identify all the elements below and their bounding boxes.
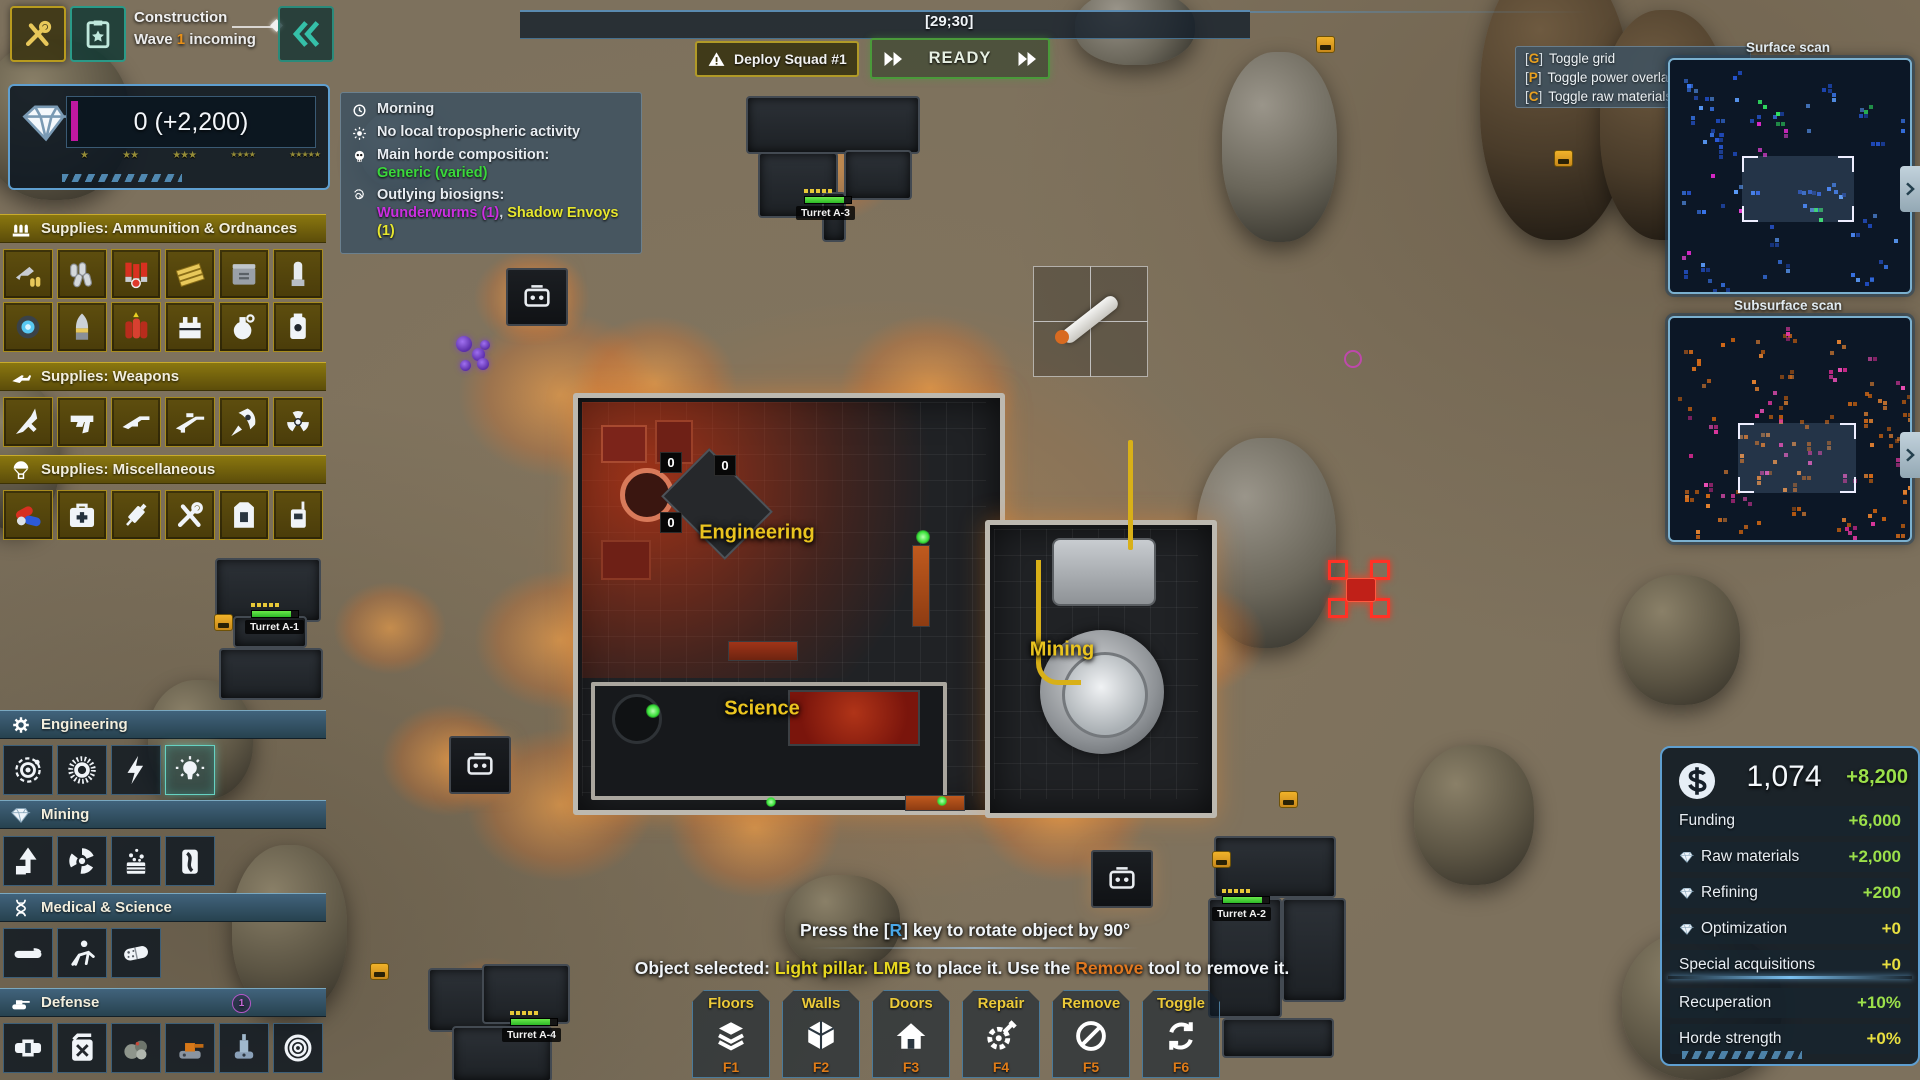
deploy-squad-label: Deploy Squad #1 [734, 51, 847, 67]
rare-deposit-dot [1871, 522, 1875, 526]
sun-icon [351, 125, 368, 142]
build-item-barrier[interactable] [3, 1023, 53, 1073]
ammo-pip [1228, 889, 1232, 893]
build-item-light-pillar[interactable] [165, 745, 215, 795]
threat-star-group: ★★★★ [230, 150, 255, 161]
rare-deposit-dot [1768, 401, 1772, 405]
surface-anomaly-dot [1757, 122, 1761, 126]
medkit-icon [65, 498, 99, 532]
economy-divider [1668, 976, 1912, 979]
turret-name-label: Turret A-1 [245, 620, 304, 634]
ore-deposit-dot [1723, 518, 1727, 522]
rare-deposit-dot [1709, 488, 1713, 492]
rare-deposit-dot [1709, 483, 1713, 487]
surface-signal-dot [1684, 275, 1688, 279]
boulder [1196, 438, 1336, 648]
tool-toggle-button[interactable]: ToggleF6 [1142, 990, 1220, 1078]
ore-deposit-dot [1908, 486, 1912, 490]
ore-deposit-dot [1868, 514, 1872, 518]
surface-signal-dot [1750, 119, 1754, 123]
marker-slot [1216, 860, 1227, 865]
ore-deposit-dot [1903, 500, 1907, 504]
tool-floors-button[interactable]: FloorsF1 [692, 990, 770, 1078]
build-item-power[interactable] [111, 745, 161, 795]
turret-health-bar [1222, 896, 1270, 904]
section-header-defense[interactable]: Defense1 [0, 988, 326, 1017]
explosive-charge-icon [119, 310, 153, 344]
door-connector [905, 795, 965, 811]
surface-signal-dot [1770, 243, 1774, 247]
surface-friendly-dot [1864, 110, 1868, 114]
tool-hotkey: F2 [813, 1059, 829, 1075]
ore-deposit-dot [1744, 525, 1748, 529]
surface-anomaly-dot [1758, 148, 1762, 152]
ore-deposit-dot [1848, 402, 1852, 406]
economy-row-funding: Funding+6,000 [1670, 806, 1910, 836]
ore-deposit-dot [1706, 504, 1710, 508]
section-header-engineering[interactable]: Engineering [0, 710, 326, 739]
condition-row: Main horde composition:Generic (varied) [351, 146, 631, 182]
ore-deposit-dot [1712, 417, 1716, 421]
text-part: LMB [873, 958, 911, 978]
build-item-bore[interactable] [57, 836, 107, 886]
surface-signal-dot [1828, 84, 1832, 88]
surface-signal-dot [1832, 98, 1836, 102]
condition-text: Main horde composition:Generic (varied) [377, 146, 627, 182]
armor-vest-icon [227, 498, 261, 532]
diamond-icon [20, 96, 72, 148]
barrier-icon [11, 1031, 45, 1065]
surface-signal-dot [1719, 155, 1723, 159]
shotgun-icon [119, 405, 153, 439]
supply-crate[interactable] [1091, 850, 1153, 908]
tool-repair-button[interactable]: RepairF4 [962, 990, 1040, 1078]
rare-deposit-dot [1786, 327, 1790, 331]
ore-deposit-dot [1869, 474, 1873, 478]
marker-slot [1558, 159, 1569, 164]
build-item-sniper-rifle[interactable] [165, 397, 215, 447]
mode-label: Construction [134, 9, 227, 26]
ore-deposit-dot [1853, 402, 1857, 406]
economy-row-horde-strength: Horde strength+0% [1670, 1024, 1910, 1054]
supply-crate[interactable] [449, 736, 511, 794]
spiral-icon [351, 188, 368, 205]
pills-icon [11, 498, 45, 532]
economy-row-value: +6,000 [1849, 811, 1901, 831]
subsurface-panel-tab[interactable] [1900, 432, 1920, 478]
yellow-pipe [1128, 440, 1133, 550]
game-screen: 000EngineeringScienceMining Turret A-1Tu… [0, 0, 1920, 1080]
ore-deposit-dot [1882, 517, 1886, 521]
turret-health-bar [804, 196, 852, 204]
rare-deposit-dot [1743, 497, 1747, 501]
ore-deposit-dot [1864, 424, 1868, 428]
surface-signal-dot [1703, 140, 1707, 144]
surface-signal-dot [1733, 152, 1737, 156]
ghost-grid-cell [1090, 321, 1148, 377]
rescue-icon [65, 936, 99, 970]
economy-row-raw-materials: Raw materials+2,000 [1670, 842, 1910, 872]
build-item-radiation[interactable] [273, 397, 323, 447]
surface-signal-dot [1719, 292, 1723, 294]
production-counter: 0 [714, 455, 736, 476]
drill-tower-icon [11, 844, 45, 878]
light-pillar-icon [173, 753, 207, 787]
rare-deposit-dot [1901, 386, 1905, 390]
build-item-explosive-charge[interactable] [111, 302, 161, 352]
ghost-grid-cell [1033, 266, 1091, 322]
build-item-grenade[interactable] [219, 302, 269, 352]
build-item-medkit[interactable] [57, 490, 107, 540]
build-item-capsule[interactable] [111, 928, 161, 978]
surface-signal-dot [1699, 106, 1703, 110]
objective-marker [1212, 851, 1231, 868]
surface-signal-dot [1689, 84, 1693, 88]
surface-signal-dot [1856, 233, 1860, 237]
build-item-fuel-can[interactable] [57, 1023, 107, 1073]
text-part: Object selected: [635, 958, 775, 978]
surface-signal-dot [1719, 133, 1723, 137]
economy-row-value: +0 [1882, 919, 1901, 939]
turret-health-bar [251, 610, 299, 618]
fast-forward-icon [881, 47, 905, 71]
surface-signal-dot [1807, 129, 1811, 133]
build-item-mine[interactable] [273, 302, 323, 352]
turret-orange-icon [173, 1031, 207, 1065]
rare-deposit-dot [1833, 378, 1837, 382]
minimap-viewport [1742, 156, 1854, 222]
surface-signal-dot [1786, 269, 1790, 273]
build-item-stretcher[interactable] [3, 928, 53, 978]
build-item-mortar-shell[interactable] [273, 249, 323, 299]
ore-deposit-dot [1864, 419, 1868, 423]
resource-value-box: 0 (+2,200) [66, 96, 316, 148]
text-part: Press the [ [800, 920, 889, 940]
viewport-corner [1838, 206, 1854, 222]
ore-deposit-dot [1901, 524, 1905, 528]
energy-cell-icon [11, 310, 45, 344]
tool-remove-button[interactable]: RemoveF5 [1052, 990, 1130, 1078]
surface-signal-dot [1719, 150, 1723, 154]
ore-deposit-dot [1793, 339, 1797, 343]
build-item-pistol-ammo[interactable] [3, 249, 53, 299]
text-part: to place it. Use the [911, 958, 1075, 978]
surface-friendly-dot [1776, 122, 1780, 126]
missions-button[interactable] [70, 6, 126, 62]
subsurface-scan-minimap[interactable] [1668, 316, 1912, 542]
build-item-ammo-belt[interactable] [165, 249, 215, 299]
build-item-ammo-can[interactable] [219, 249, 269, 299]
economy-row-value: +200 [1863, 883, 1901, 903]
shells-icon [10, 218, 32, 240]
build-item-armor-vest[interactable] [219, 490, 269, 540]
rare-deposit-dot [1704, 483, 1708, 487]
build-item-drill-tower[interactable] [3, 836, 53, 886]
marker-slot [218, 623, 229, 628]
tool-walls-button[interactable]: WallsF2 [782, 990, 860, 1078]
section-badge: 1 [232, 994, 251, 1013]
viewport-corner [1738, 423, 1754, 439]
ore-deposit-dot [1685, 498, 1689, 502]
ore-deposit-dot [1797, 507, 1801, 511]
surface-signal-dot [1763, 275, 1767, 279]
build-item-energy-cell[interactable] [3, 302, 53, 352]
build-item-orbit-generator[interactable] [3, 745, 53, 795]
text-part: ] key to rotate object by 90° [902, 920, 1130, 940]
build-item-radar[interactable] [273, 1023, 323, 1073]
ore-deposit-dot [1864, 474, 1868, 478]
surface-signal-dot [1757, 115, 1761, 119]
detonator-icon [173, 310, 207, 344]
knife-icon [11, 405, 45, 439]
grenade-icon [227, 310, 261, 344]
radar-icon [281, 1031, 315, 1065]
supply-crate[interactable] [506, 268, 568, 326]
tool-hotkey: F1 [723, 1059, 739, 1075]
surface-anomaly-dot [1687, 251, 1691, 255]
condition-text: No local tropospheric activity [377, 123, 580, 141]
target-corner [1328, 560, 1348, 580]
build-item-shotgun-shells[interactable] [111, 249, 161, 299]
section-header-weapons[interactable]: Supplies: Weapons [0, 362, 326, 391]
biosign-blob [477, 358, 489, 370]
ammo-pip [522, 1011, 526, 1015]
clock-icon [351, 102, 368, 119]
engineering-machine [601, 425, 647, 463]
economy-row-value: +2,000 [1849, 847, 1901, 867]
power-icon [119, 753, 153, 787]
build-item-solar-generator[interactable] [57, 745, 107, 795]
health-fill [252, 611, 291, 617]
chem-extractor-icon [119, 844, 153, 878]
ore-deposit-dot [1908, 418, 1912, 422]
text-part: Remove [1075, 958, 1143, 978]
surface-signal-dot [1806, 104, 1810, 108]
economy-row-label: Recuperation [1679, 994, 1771, 1012]
fuel-can-icon [65, 1031, 99, 1065]
hint-key: [C] [1525, 87, 1542, 106]
economy-row-value: +0% [1867, 1029, 1902, 1049]
tool-hotkey: F4 [993, 1059, 1009, 1075]
build-item-pills[interactable] [3, 490, 53, 540]
turret-structure [1282, 898, 1346, 1002]
cube-icon [803, 1018, 839, 1054]
surface-anomaly-dot [1784, 129, 1788, 133]
world-coordinates: [29;30] [925, 13, 973, 30]
skull-icon [351, 148, 368, 165]
surface-signal-dot [1879, 260, 1883, 264]
section-title: Supplies: Ammunition & Ordnances [41, 220, 297, 237]
object-selected-message: Object selected: Light pillar. LMB to pl… [635, 958, 1290, 979]
surface-signal-dot [1832, 93, 1836, 97]
ammo-pip [510, 1011, 514, 1015]
deploy-squad-button[interactable]: Deploy Squad #1 [695, 41, 859, 77]
tool-hotkey: F6 [1173, 1059, 1189, 1075]
section-header-misc[interactable]: Supplies: Miscellaneous [0, 455, 326, 484]
build-item-rubble[interactable] [111, 1023, 161, 1073]
radio-icon [281, 498, 315, 532]
status-light-green [646, 704, 660, 718]
ore-deposit-dot [1759, 354, 1763, 358]
economy-row-label: Funding [1679, 812, 1735, 830]
surface-signal-dot [1770, 225, 1774, 229]
ore-deposit-dot [1883, 401, 1887, 405]
biosign-blob [456, 336, 472, 352]
surface-signal-dot [1775, 238, 1779, 242]
section-header-medical[interactable]: Medical & Science [0, 893, 326, 922]
viewport-corner [1738, 477, 1754, 493]
turret-name-label: Turret A-3 [796, 206, 855, 220]
ore-deposit-dot [1695, 490, 1699, 494]
ammo-pip [251, 603, 255, 607]
surface-signal-dot [1868, 224, 1872, 228]
ore-deposit-dot [1873, 509, 1877, 513]
ore-deposit-dot [1706, 494, 1710, 498]
ore-deposit-dot [1757, 521, 1761, 525]
section-header-ammo[interactable]: Supplies: Ammunition & Ordnances [0, 214, 326, 243]
minimap-viewport [1738, 423, 1856, 493]
build-item-shotgun[interactable] [111, 397, 161, 447]
tool-label: Walls [802, 995, 841, 1012]
ore-deposit-dot [1869, 479, 1873, 483]
objective-marker [1316, 36, 1335, 53]
ammo-pip [534, 1011, 538, 1015]
ore-deposit-dot [1870, 443, 1874, 447]
ore-deposit-dot [1889, 434, 1893, 438]
surface-signal-dot [1694, 96, 1698, 100]
build-item-chem-extractor[interactable] [111, 836, 161, 886]
ore-deposit-dot [1784, 396, 1788, 400]
dollar-icon [1674, 758, 1720, 804]
rare-deposit-dot [1714, 425, 1718, 429]
build-item-missile[interactable] [219, 397, 269, 447]
surface-signal-dot [1851, 233, 1855, 237]
ready-button[interactable]: READY [870, 38, 1050, 79]
ammo-pip [810, 189, 814, 193]
canister-icon [173, 844, 207, 878]
surface-signal-dot [1716, 119, 1720, 123]
solar-generator-icon [65, 753, 99, 787]
syringe-icon [119, 498, 153, 532]
ore-deposit-dot [1755, 387, 1759, 391]
collapse-panel-button[interactable] [278, 6, 334, 62]
build-item-rescue[interactable] [57, 928, 107, 978]
surface-signal-dot [1786, 264, 1790, 268]
ore-deposit-dot [1688, 407, 1692, 411]
crate-bot-icon [463, 748, 497, 782]
tool-label: Toggle [1157, 995, 1205, 1012]
text-part: incoming [185, 31, 256, 48]
marker-slot [374, 972, 385, 977]
resource-value: 0 (+2,200) [67, 97, 315, 147]
gear-icon [10, 714, 32, 736]
clipboard-star-icon [81, 17, 115, 51]
text-part: No local tropospheric activity [377, 124, 580, 140]
section-title: Supplies: Miscellaneous [41, 461, 215, 478]
objective-marker [370, 963, 389, 980]
conveyor-strip [728, 641, 798, 661]
build-item-pistol[interactable] [57, 397, 107, 447]
surface-signal-dot [1901, 129, 1905, 133]
ore-deposit-dot [1696, 530, 1700, 534]
tool-doors-button[interactable]: DoorsF3 [872, 990, 950, 1078]
surface-anomaly-dot [1711, 174, 1715, 178]
surface-signal-dot [1881, 142, 1885, 146]
build-item-syringe[interactable] [111, 490, 161, 540]
economy-row-label: Refining [1701, 884, 1758, 902]
surface-scan-minimap[interactable] [1668, 58, 1912, 294]
threat-star-group: ★★★★★ [289, 150, 320, 161]
tool-label: Repair [978, 995, 1025, 1012]
placement-ghost[interactable] [1033, 266, 1147, 376]
rare-deposit-dot [1786, 332, 1790, 336]
boulder [1222, 52, 1337, 242]
build-item-tools[interactable] [165, 490, 215, 540]
diamond-icon [10, 804, 32, 826]
surface-signal-dot [1860, 108, 1864, 112]
ammo-pip [528, 1011, 532, 1015]
turret-structure [746, 96, 920, 154]
turret-structure [219, 648, 323, 700]
refresh-icon [1163, 1018, 1199, 1054]
viewport-corner [1838, 156, 1854, 172]
text-part: Outlying biosigns: [377, 187, 504, 203]
ore-deposit-dot [1769, 415, 1773, 419]
surface-signal-dot [1684, 79, 1688, 83]
build-item-radio[interactable] [273, 490, 323, 540]
text-part: Wunderwurms (1) [377, 205, 499, 221]
ore-deposit-dot [1903, 413, 1907, 417]
light-glow [318, 569, 463, 688]
build-item-turret-orange[interactable] [165, 1023, 215, 1073]
build-item-turret-blue[interactable] [219, 1023, 269, 1073]
boulder [1620, 575, 1740, 705]
enemy-target-brackets [1328, 560, 1390, 618]
engineering-machine [601, 540, 651, 580]
enemy-unit[interactable] [1346, 578, 1376, 602]
surface-panel-tab[interactable] [1900, 166, 1920, 212]
surface-signal-dot [1775, 243, 1779, 247]
build-item-artillery-shell[interactable] [57, 302, 107, 352]
ore-deposit-dot [1792, 512, 1796, 516]
conditions-tooltip: MorningNo local tropospheric activityMai… [340, 92, 642, 254]
surface-signal-dot [1734, 190, 1738, 194]
build-menu-button[interactable] [10, 6, 66, 62]
turret-structure [1222, 1018, 1334, 1058]
build-item-detonator[interactable] [165, 302, 215, 352]
viewport-corner [1742, 156, 1758, 172]
surface-signal-dot [1721, 204, 1725, 208]
ore-deposit-dot [1830, 415, 1834, 419]
build-item-knife[interactable] [3, 397, 53, 447]
rifle-casings-icon [65, 257, 99, 291]
ore-deposit-dot [1887, 427, 1891, 431]
build-item-canister[interactable] [165, 836, 215, 886]
ammo-pip [257, 603, 261, 607]
threat-star-group: ★ [80, 150, 88, 161]
economy-secondary-rows: Recuperation+10%Horde strength+0% [1670, 988, 1910, 1060]
surface-signal-dot [1702, 210, 1706, 214]
surface-signal-dot [1719, 145, 1723, 149]
surface-signal-dot [1876, 142, 1880, 146]
surface-signal-dot [1708, 279, 1712, 283]
build-item-rifle-casings[interactable] [57, 249, 107, 299]
ammo-pip [516, 1011, 520, 1015]
section-header-mining[interactable]: Mining [0, 800, 326, 829]
warning-icon [707, 50, 726, 69]
ammo-pip [1246, 889, 1250, 893]
surface-signal-dot [1822, 88, 1826, 92]
